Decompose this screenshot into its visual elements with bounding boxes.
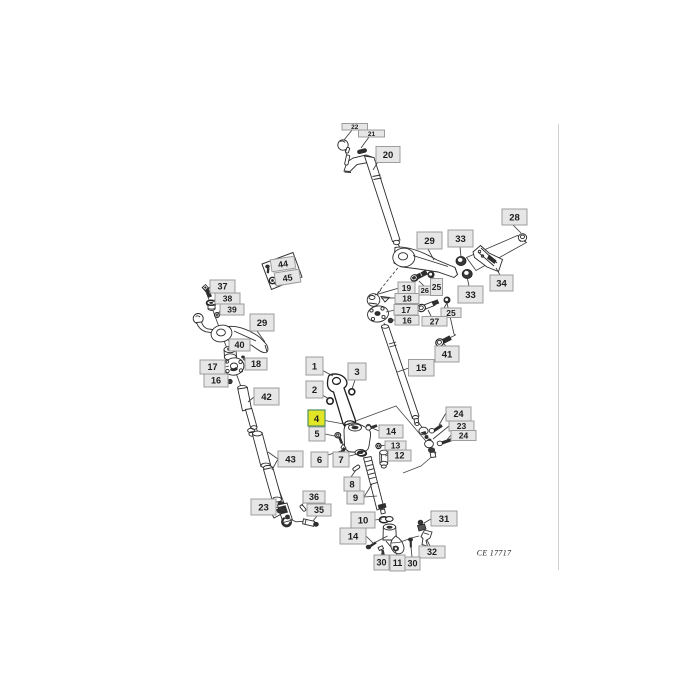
svg-text:2: 2: [312, 385, 317, 396]
svg-text:8: 8: [349, 479, 354, 490]
svg-text:22: 22: [351, 124, 359, 131]
svg-text:3: 3: [354, 367, 359, 378]
svg-text:29: 29: [424, 236, 435, 247]
svg-text:12: 12: [394, 451, 404, 461]
svg-text:9: 9: [353, 493, 358, 504]
svg-text:CE 17717: CE 17717: [477, 549, 512, 558]
svg-text:6: 6: [317, 455, 322, 466]
svg-text:14: 14: [348, 531, 359, 542]
svg-text:45: 45: [282, 272, 293, 283]
svg-text:37: 37: [217, 282, 227, 292]
svg-text:25: 25: [432, 282, 442, 292]
svg-text:21: 21: [368, 131, 376, 138]
svg-text:35: 35: [314, 505, 324, 515]
svg-text:42: 42: [261, 392, 272, 403]
svg-text:30: 30: [407, 559, 417, 569]
svg-text:11: 11: [393, 558, 403, 568]
svg-text:7: 7: [338, 455, 343, 466]
svg-text:19: 19: [402, 283, 412, 293]
svg-text:26: 26: [421, 286, 429, 295]
svg-text:16: 16: [402, 315, 412, 325]
svg-text:17: 17: [207, 362, 217, 372]
svg-text:28: 28: [509, 212, 520, 223]
svg-text:31: 31: [439, 514, 450, 525]
svg-text:33: 33: [465, 290, 476, 301]
svg-text:23: 23: [457, 421, 467, 431]
svg-text:18: 18: [402, 294, 412, 304]
svg-text:27: 27: [430, 316, 440, 326]
svg-text:30: 30: [376, 558, 386, 568]
svg-text:33: 33: [455, 234, 466, 245]
svg-text:39: 39: [227, 305, 237, 315]
svg-text:32: 32: [427, 547, 437, 557]
svg-text:24: 24: [453, 409, 463, 419]
svg-text:17: 17: [401, 305, 411, 315]
svg-text:34: 34: [496, 278, 507, 289]
svg-text:29: 29: [257, 318, 268, 329]
svg-text:25: 25: [446, 308, 456, 318]
svg-text:36: 36: [309, 492, 319, 502]
svg-text:41: 41: [442, 349, 453, 360]
svg-text:1: 1: [312, 361, 318, 372]
svg-text:24: 24: [459, 431, 469, 441]
svg-text:5: 5: [314, 429, 319, 439]
svg-text:43: 43: [285, 454, 296, 465]
svg-text:23: 23: [258, 502, 269, 513]
svg-text:10: 10: [358, 515, 369, 526]
svg-text:16: 16: [211, 376, 221, 386]
svg-text:20: 20: [383, 150, 394, 161]
svg-text:4: 4: [314, 414, 320, 425]
svg-text:18: 18: [251, 359, 261, 369]
svg-text:14: 14: [386, 427, 396, 437]
svg-text:13: 13: [391, 441, 401, 451]
svg-text:15: 15: [416, 363, 427, 374]
svg-text:44: 44: [277, 258, 288, 269]
svg-text:38: 38: [223, 294, 233, 304]
svg-text:40: 40: [234, 340, 244, 350]
